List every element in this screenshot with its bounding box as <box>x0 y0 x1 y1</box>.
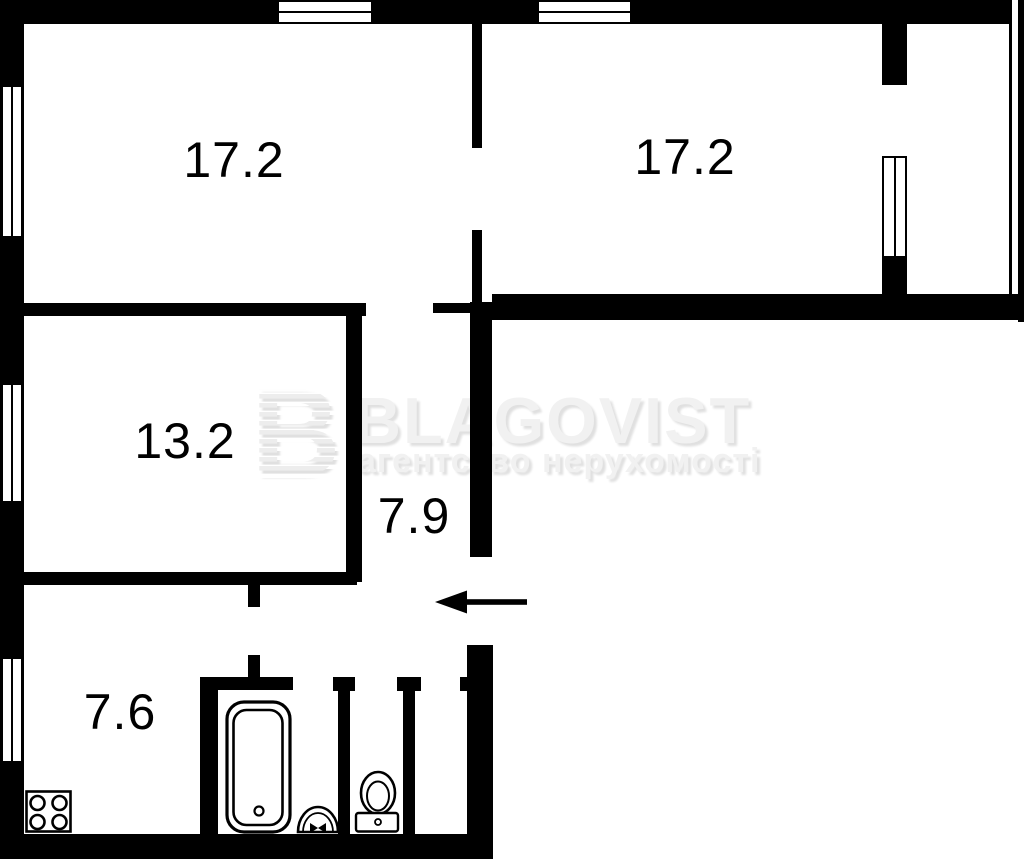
window-divider <box>538 11 631 13</box>
wall-wc-closet-partition-cap <box>397 677 421 691</box>
wall-room13-top <box>0 303 366 316</box>
wall-bottom-right <box>467 645 493 859</box>
window-top-right-room <box>537 0 632 24</box>
agency-watermark-tagline: агентство нерухомості <box>357 444 760 478</box>
entrance-arrow <box>428 588 532 616</box>
window-top-left-room <box>277 0 373 24</box>
wall-balcony-partition-lower <box>882 257 907 302</box>
wall-top <box>0 0 1012 24</box>
wall-wc-closet-partition <box>403 691 415 834</box>
wall-kitchen-bath-divider <box>200 677 218 834</box>
stove-burner <box>31 815 45 829</box>
toilet-button <box>375 819 381 825</box>
window-left-room17 <box>1 85 23 238</box>
wall-balcony-partition-upper <box>882 23 907 85</box>
room-area-kitchen: 7.6 <box>84 683 157 741</box>
wall-hallway-right <box>470 302 492 557</box>
wall-bathroom-top <box>200 677 293 690</box>
floor-plan: B BLAGOVIST агентство нерухомості <box>0 0 1024 859</box>
window-balcony-partition <box>882 156 907 258</box>
room-area-top-right: 17.2 <box>634 128 735 186</box>
window-divider <box>11 86 13 237</box>
window-divider <box>11 658 13 762</box>
wall-room-right-bottom <box>492 294 1022 320</box>
wall-closet-door-jamb <box>460 677 467 691</box>
stove <box>25 790 72 833</box>
stove-burner <box>53 796 67 810</box>
wall-bottom <box>0 834 493 859</box>
agency-logo-letter: B <box>251 385 341 481</box>
wall-bath-wc-partition-cap <box>333 677 355 691</box>
window-divider <box>278 11 372 13</box>
wall-kitchen-door-jamb-upper <box>248 585 260 607</box>
stove-burner <box>53 815 67 829</box>
window-divider <box>894 157 896 257</box>
balcony-glazing-line <box>1009 23 1012 297</box>
room-area-middle-left: 13.2 <box>134 412 235 470</box>
toilet <box>352 770 402 834</box>
agency-logo-b: B <box>251 385 343 481</box>
wall-between-top-rooms-lower <box>472 230 482 302</box>
wall-room13-right <box>346 316 362 582</box>
bathtub <box>225 700 292 834</box>
wall-kitchen-top <box>0 572 357 585</box>
room-area-top-left: 17.2 <box>183 131 284 189</box>
window-left-room13 <box>1 383 23 503</box>
window-divider <box>11 384 13 502</box>
stove-burner <box>31 796 45 810</box>
wall-between-top-rooms-upper <box>472 23 482 148</box>
wall-hallway-top-stub <box>433 303 472 313</box>
window-left-kitchen <box>1 657 23 763</box>
bathtub-drain <box>255 807 264 816</box>
wall-kitchen-door-jamb-lower <box>248 655 260 677</box>
room-area-hallway: 7.9 <box>378 487 451 545</box>
wall-right-outer <box>1018 0 1024 322</box>
sink <box>296 804 340 834</box>
